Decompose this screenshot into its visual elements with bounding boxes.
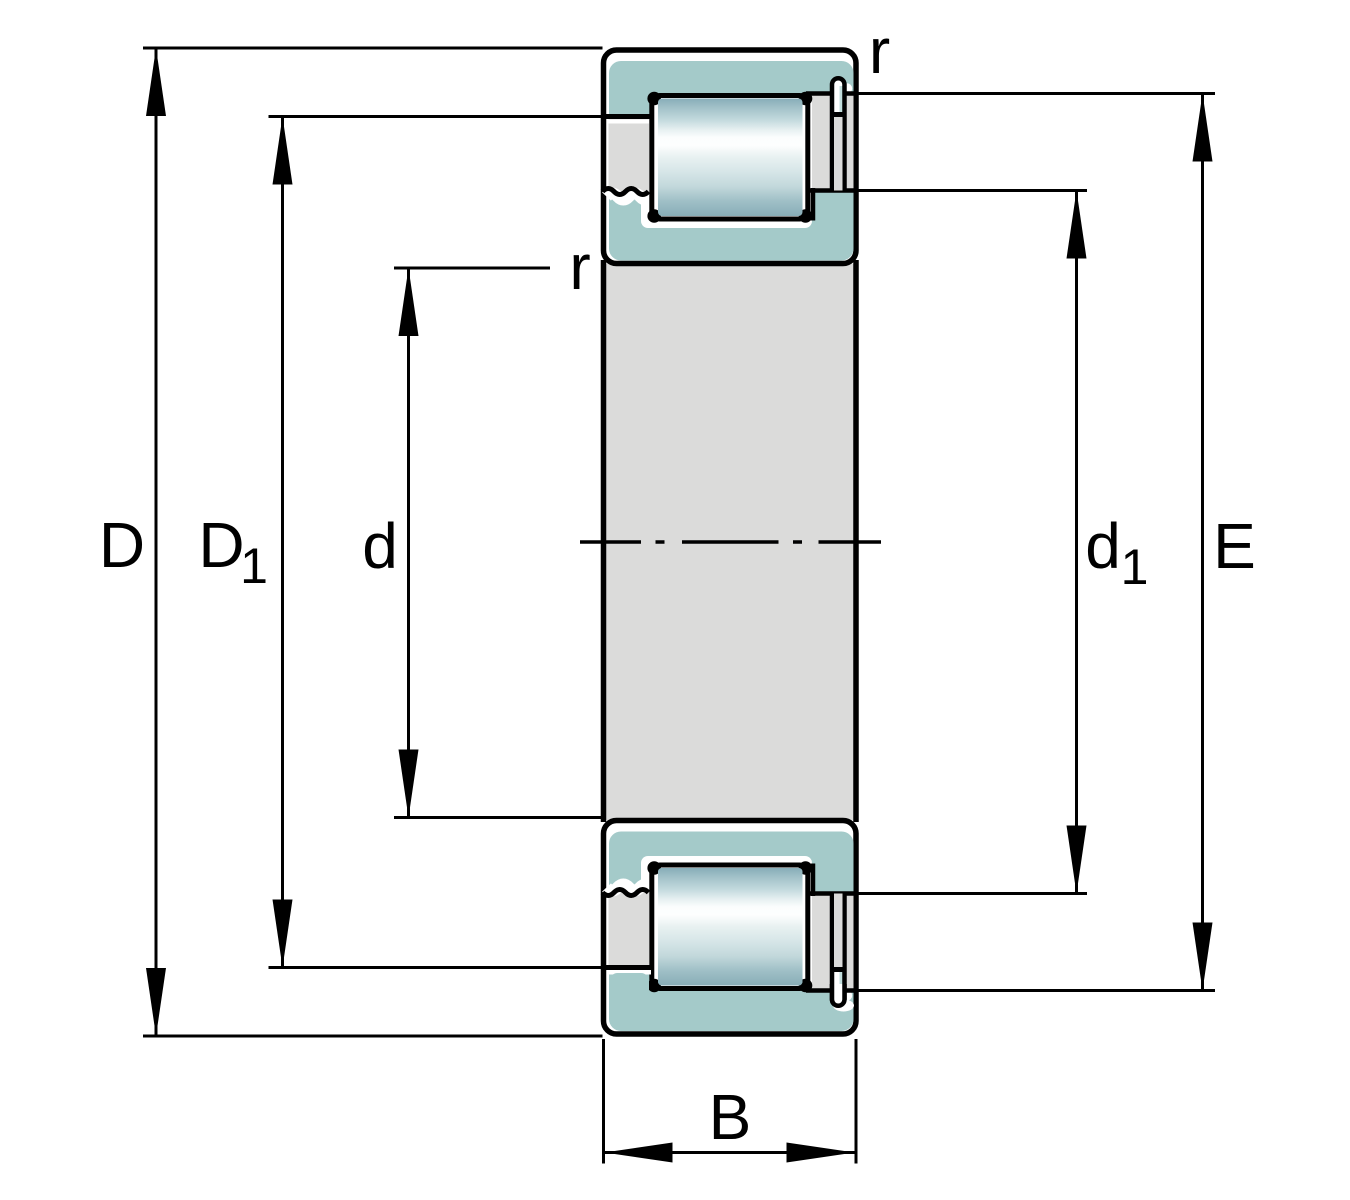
- svg-text:E: E: [1213, 510, 1256, 582]
- svg-text:r: r: [869, 15, 890, 87]
- svg-text:D: D: [99, 509, 145, 581]
- svg-text:r: r: [569, 231, 590, 303]
- svg-text:D: D: [198, 509, 244, 581]
- svg-text:d: d: [362, 510, 398, 582]
- svg-text:1: 1: [1121, 539, 1149, 595]
- svg-text:d: d: [1085, 510, 1121, 582]
- svg-text:1: 1: [240, 538, 268, 594]
- svg-text:B: B: [709, 1081, 752, 1153]
